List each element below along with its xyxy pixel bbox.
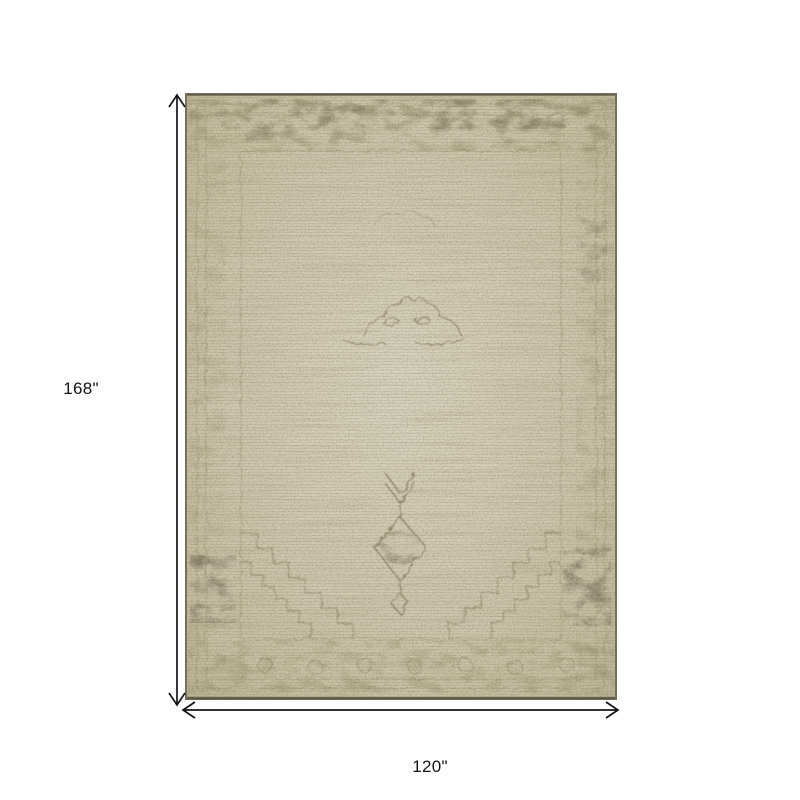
width-arrow-head-right <box>606 702 618 718</box>
height-arrow <box>169 95 185 705</box>
height-dimension-label: 168" <box>46 379 116 399</box>
height-arrow-head-bottom <box>169 693 185 705</box>
width-dimension-label: 120" <box>395 757 465 777</box>
width-arrow-head-left <box>183 702 195 718</box>
width-arrow <box>183 702 618 718</box>
rug-image <box>185 93 617 700</box>
rug-illustration <box>185 93 617 700</box>
product-dimension-diagram: 168" 120" <box>0 0 800 800</box>
height-arrow-head-top <box>169 95 185 107</box>
